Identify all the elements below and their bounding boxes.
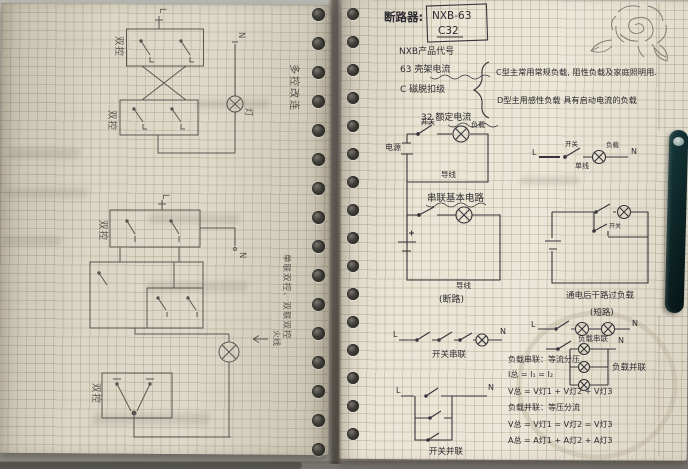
binder-hole — [312, 327, 325, 340]
binder-hole — [312, 414, 325, 427]
binder-hole — [312, 182, 325, 195]
binder-hole — [347, 344, 359, 356]
binder-hole — [347, 36, 359, 48]
binder-hole — [312, 385, 325, 398]
binder-hole — [312, 124, 325, 137]
binder-hole — [347, 372, 359, 384]
spiral-binding-gap — [328, 0, 342, 464]
binder-hole — [312, 153, 325, 166]
binder-holes-right-column — [347, 8, 359, 440]
binder-holes-left-column — [312, 8, 325, 456]
binder-hole — [312, 37, 325, 50]
binder-hole — [347, 232, 359, 244]
binder-hole — [312, 443, 325, 456]
binder-hole — [347, 204, 359, 216]
binder-hole — [347, 64, 359, 76]
binder-hole — [347, 92, 359, 104]
notebook-photo: L 双控 双控 N 灯 L 双控 N 双控 火线 多控改连 单联双控、双联双控 — [0, 0, 688, 469]
binder-hole — [312, 211, 325, 224]
binder-hole — [312, 298, 325, 311]
right-notebook-page — [339, 0, 688, 461]
binder-hole — [312, 95, 325, 108]
binder-hole — [312, 66, 325, 79]
binder-hole — [312, 8, 325, 21]
binder-hole — [347, 8, 359, 20]
binder-hole — [312, 356, 325, 369]
binder-hole — [347, 260, 359, 272]
binder-hole — [347, 288, 359, 300]
binder-hole — [347, 316, 359, 328]
binder-hole — [347, 400, 359, 412]
left-notebook-page — [0, 3, 332, 455]
binder-hole — [347, 120, 359, 132]
binder-hole — [312, 269, 325, 282]
binder-hole — [347, 176, 359, 188]
binder-hole — [347, 148, 359, 160]
binder-hole — [347, 428, 359, 440]
binder-hole — [312, 240, 325, 253]
table-shadow-object — [0, 462, 302, 469]
